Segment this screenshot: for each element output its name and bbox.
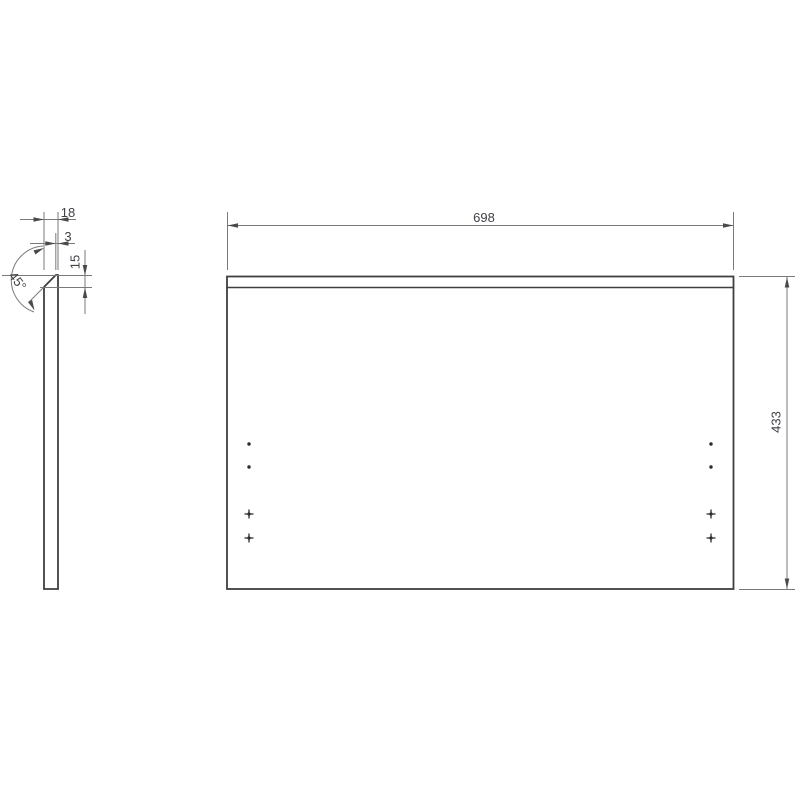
front-view: 698 433 bbox=[227, 210, 795, 590]
height-dimension: 433 bbox=[739, 277, 795, 590]
height-dimension-label: 433 bbox=[769, 411, 784, 433]
hole-marker-cross-center bbox=[709, 536, 712, 539]
hole-marker-cross-center bbox=[247, 512, 250, 515]
chamfer-extension-line bbox=[29, 287, 45, 303]
chamfer-angle-dimension-label: 45° bbox=[6, 269, 30, 294]
chamfer-angle-dimension: 45° bbox=[6, 246, 45, 312]
hole-marker-dot bbox=[247, 442, 250, 445]
hole-marker-dot bbox=[247, 465, 250, 468]
hole-marker-dot bbox=[709, 442, 712, 445]
top-edge-dimension-label: 3 bbox=[64, 229, 71, 244]
hole-marker-cross-center bbox=[247, 536, 250, 539]
drawing-canvas: 18 3 15 45° bbox=[0, 0, 800, 800]
side-panel-outline bbox=[44, 275, 58, 589]
width-dimension: 698 bbox=[228, 210, 734, 270]
thickness-dimension-label: 18 bbox=[61, 205, 75, 220]
chamfer-height-dimension-label: 15 bbox=[68, 255, 83, 269]
hole-marker-dot bbox=[709, 465, 712, 468]
side-profile-view: 18 3 15 45° bbox=[2, 205, 92, 589]
hole-markers bbox=[245, 442, 716, 542]
hole-marker-cross-center bbox=[709, 512, 712, 515]
front-panel-outline bbox=[227, 277, 734, 590]
width-dimension-label: 698 bbox=[473, 210, 495, 225]
